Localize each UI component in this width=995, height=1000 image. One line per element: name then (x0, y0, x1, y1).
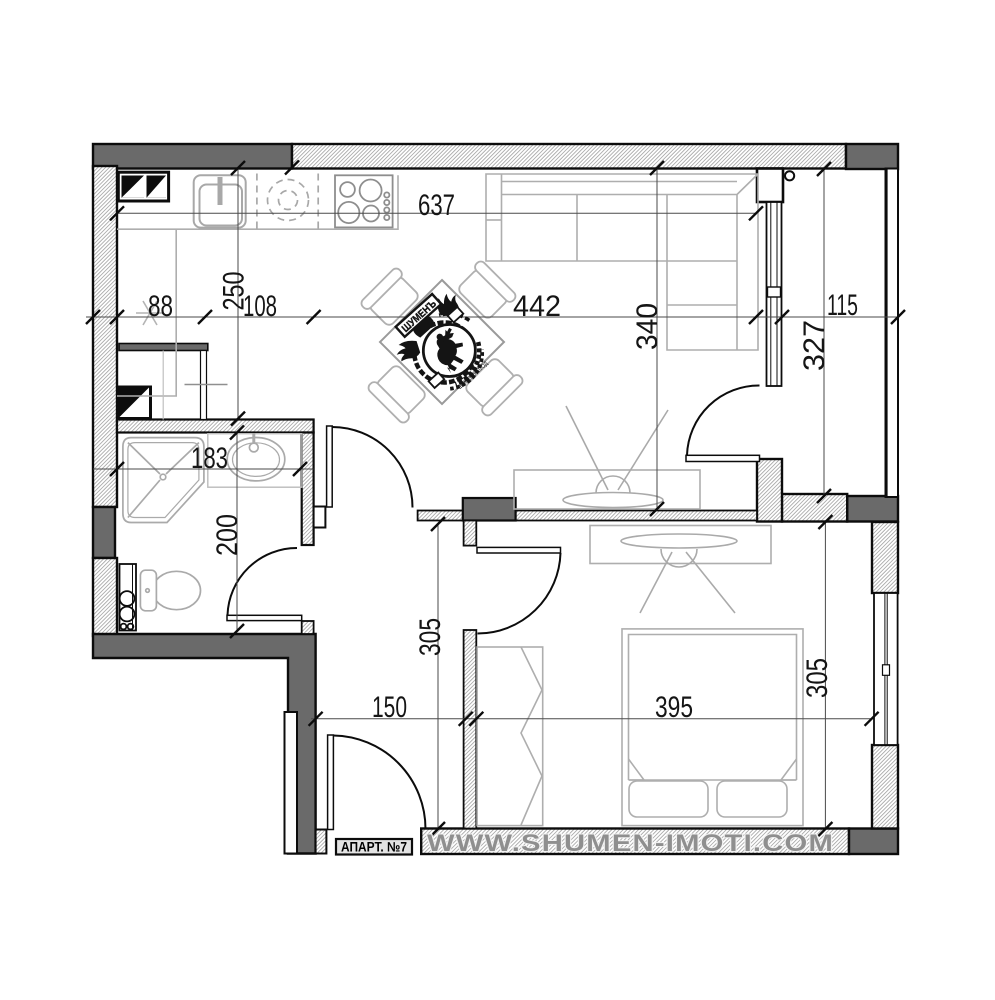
svg-text:150: 150 (372, 691, 407, 724)
svg-text:327: 327 (798, 320, 831, 371)
svg-text:340: 340 (631, 303, 664, 350)
svg-text:305: 305 (414, 618, 447, 656)
svg-text:442: 442 (513, 290, 561, 323)
svg-text:305: 305 (801, 658, 834, 698)
svg-text:183: 183 (191, 442, 228, 475)
svg-text:WWW.SHUMEN-IMOTI.COM: WWW.SHUMEN-IMOTI.COM (427, 830, 834, 857)
svg-text:637: 637 (418, 189, 455, 222)
svg-text:115: 115 (827, 289, 858, 322)
svg-text:395: 395 (655, 691, 693, 724)
svg-text:250: 250 (218, 272, 251, 311)
svg-text:АПАРТ. №7: АПАРТ. №7 (341, 840, 407, 855)
svg-text:88: 88 (148, 290, 173, 323)
svg-text:200: 200 (211, 514, 244, 556)
